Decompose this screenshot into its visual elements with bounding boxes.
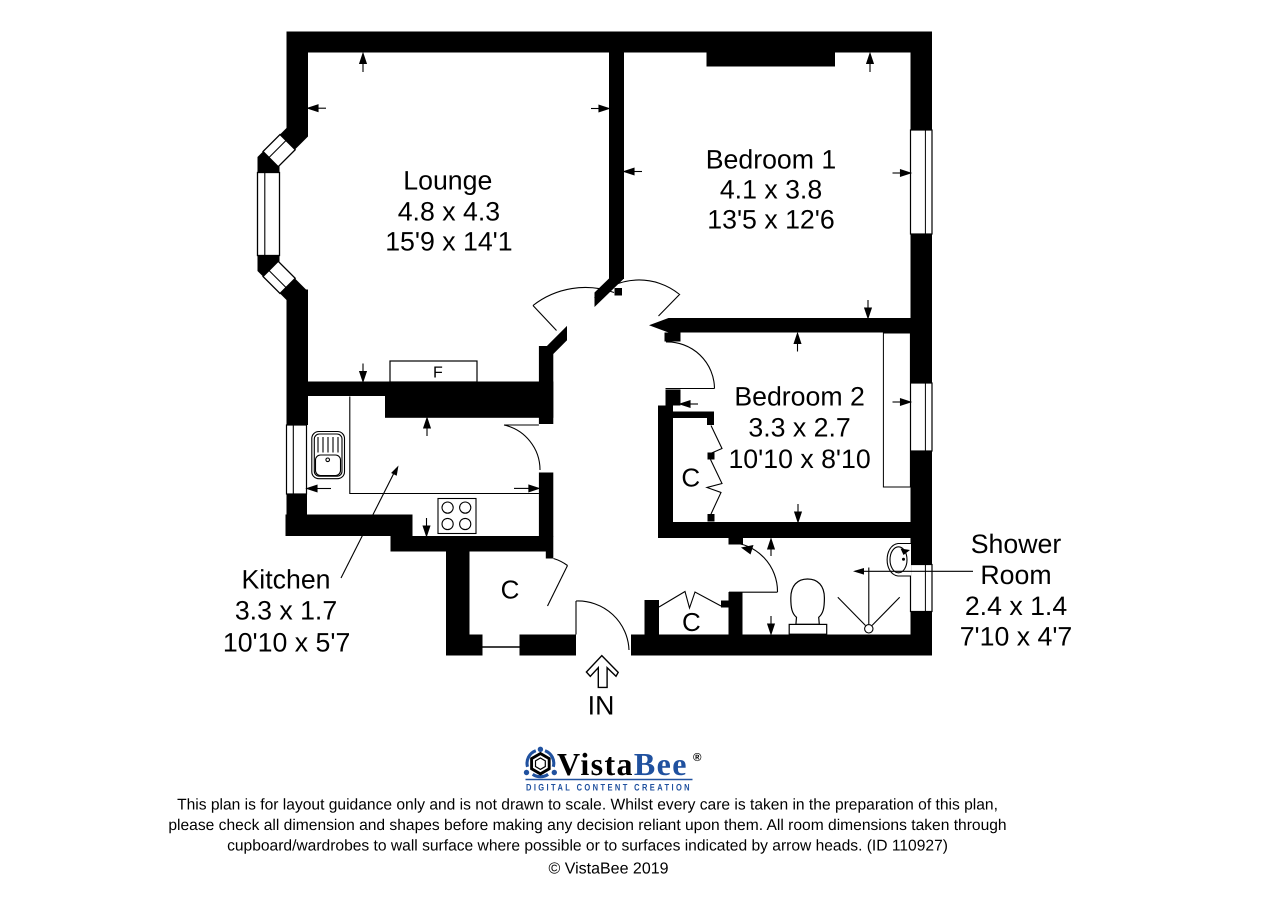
- svg-text:Shower: Shower: [971, 529, 1062, 559]
- svg-text:3.3 x 1.7: 3.3 x 1.7: [235, 596, 337, 626]
- svg-text:C: C: [681, 463, 700, 493]
- svg-text:IN: IN: [588, 691, 615, 721]
- svg-text:15'9 x 14'1: 15'9 x 14'1: [385, 227, 512, 257]
- svg-text:© VistaBee 2019: © VistaBee 2019: [548, 861, 668, 878]
- svg-text:7'10 x 4'7: 7'10 x 4'7: [960, 622, 1073, 652]
- svg-text:3.3 x 2.7: 3.3 x 2.7: [748, 413, 850, 443]
- svg-text:C: C: [501, 575, 520, 605]
- svg-text:C: C: [682, 607, 701, 637]
- svg-text:Bedroom 1: Bedroom 1: [706, 145, 837, 175]
- svg-text:13'5 x 12'6: 13'5 x 12'6: [707, 205, 834, 235]
- svg-text:DIGITAL CONTENT CREATION: DIGITAL CONTENT CREATION: [526, 783, 692, 794]
- svg-text:Room: Room: [980, 560, 1051, 590]
- svg-text:4.8 x 4.3: 4.8 x 4.3: [398, 197, 500, 227]
- svg-text:®: ®: [693, 752, 702, 764]
- svg-text:10'10 x 8'10: 10'10 x 8'10: [728, 444, 870, 474]
- svg-text:Bedroom 2: Bedroom 2: [734, 382, 865, 412]
- svg-text:2.4 x 1.4: 2.4 x 1.4: [965, 591, 1068, 621]
- svg-text:F: F: [433, 365, 443, 382]
- svg-text:VistaBee: VistaBee: [557, 746, 688, 782]
- svg-text:Lounge: Lounge: [403, 166, 492, 196]
- svg-text:Kitchen: Kitchen: [241, 565, 330, 595]
- svg-text:10'10 x 5'7: 10'10 x 5'7: [223, 628, 350, 658]
- svg-text:4.1 x 3.8: 4.1 x 3.8: [720, 175, 822, 205]
- svg-text:cupboard/wardrobes to wall sur: cupboard/wardrobes to wall surface where…: [227, 837, 948, 854]
- svg-text:please check all dimension and: please check all dimension and shapes be…: [168, 817, 1006, 834]
- svg-text:This plan is for layout guidan: This plan is for layout guidance only an…: [177, 797, 998, 814]
